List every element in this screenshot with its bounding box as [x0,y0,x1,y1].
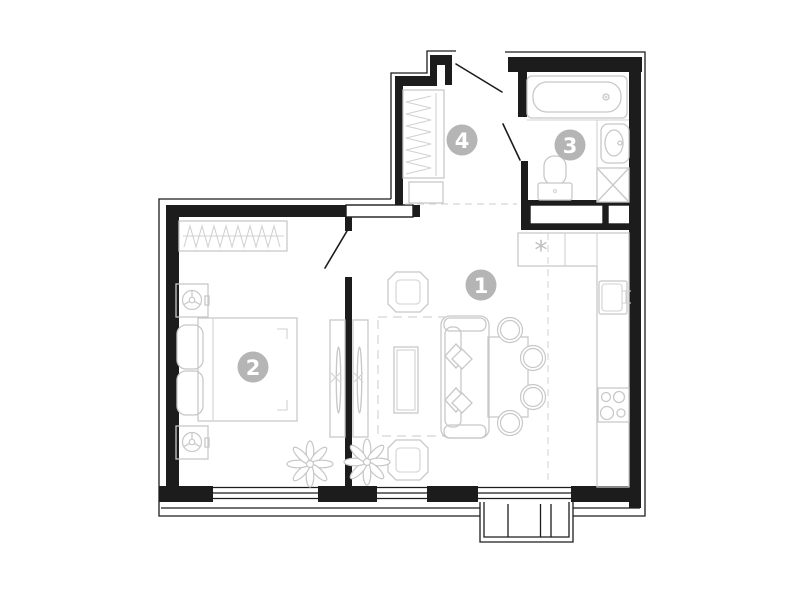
toilet-tank [538,183,572,200]
nightstand-bottom-knob [205,438,209,447]
hall-furniture-group [403,90,444,203]
wall-top-bedroom [166,205,346,217]
window-bedroom [213,488,318,499]
wall-top-open-segment [346,205,413,217]
room-label-4-number: 4 [455,129,470,153]
dining-table [488,337,528,417]
room-label-1: 1 [466,270,497,301]
plant-living [344,439,390,485]
living-furniture-group [287,272,546,487]
sofa-body [441,316,489,438]
dining-chair-1 [498,318,523,343]
bathtub [527,76,627,118]
room-label-3: 3 [555,130,586,161]
bay-window-mullions [508,504,551,537]
bedroom-door-leaf [325,231,347,268]
wall-top-cap [413,205,420,217]
window-living-small [377,488,427,499]
bed-corner-mark-bottom [277,400,287,410]
wall-hall-left [395,82,403,205]
lamp-bottom-icon [183,433,202,452]
bed-pillow-top [177,325,203,369]
toilet [538,156,572,200]
wall-partition-bedroom-living [345,277,352,488]
bed-corner-mark-top [277,329,287,339]
dining-chair-4 [498,411,523,436]
armchair-bottom [388,440,428,480]
kitchen-sink-outer [599,281,627,314]
room-label-3-number: 3 [563,134,578,158]
wall-bathroom-left-upper [518,72,527,117]
tv-mark-bedroom [331,373,340,382]
floor-plan: * [0,0,800,600]
floor-plan-page: * [0,0,800,600]
coffee-table-outer [394,347,418,413]
plant-bedroom [287,441,333,487]
bathroom-sink [601,124,629,163]
room-label-2-number: 2 [246,356,261,380]
bed-pillow-bottom [177,371,203,415]
toilet-bowl [544,156,566,185]
tv-console-living [353,320,368,437]
window-pier-4 [571,486,629,502]
dining-chair-3 [521,385,546,410]
lamp-top-icon [183,291,202,310]
stove [598,388,629,422]
window-pier-3 [427,486,478,502]
window-pier-2 [318,486,377,502]
sofa [441,316,489,438]
wall-bathroom-top [508,57,642,72]
armchair-top-body [388,272,428,312]
hall-shoe-cabinet [409,182,443,203]
nightstand-top-knob [205,296,209,305]
vent-shaft-small [608,205,630,224]
vent-shaft-large [530,205,603,224]
bedroom-furniture-group [176,221,345,459]
wall-right [629,57,641,508]
room-label-4: 4 [447,125,478,156]
wall-bathroom-left-stub [521,161,528,201]
entrance-door-leaf [456,64,502,92]
hall-wardrobe-hangers [406,96,431,174]
armchair-bottom-body [388,440,428,480]
fridge-symbol: * [535,236,548,266]
bathroom-door-leaf [503,124,520,160]
room-label-1-number: 1 [474,274,489,298]
room-label-2: 2 [238,352,269,383]
window-pier-1 [159,486,213,502]
dining-chair-2 [521,346,546,371]
tv-console-bedroom [330,320,345,437]
armchair-top [388,272,428,312]
washing-machine [597,168,629,202]
window-living-bay-top [478,488,571,499]
kitchen-sink [599,281,631,314]
coffee-table-inner [397,350,415,410]
wall-entry-step-c [430,55,437,86]
bedroom-door-jamb [345,217,352,231]
bay-window-outline [480,502,573,542]
windows-group [213,488,573,543]
entrance-door-jamb [445,55,452,85]
